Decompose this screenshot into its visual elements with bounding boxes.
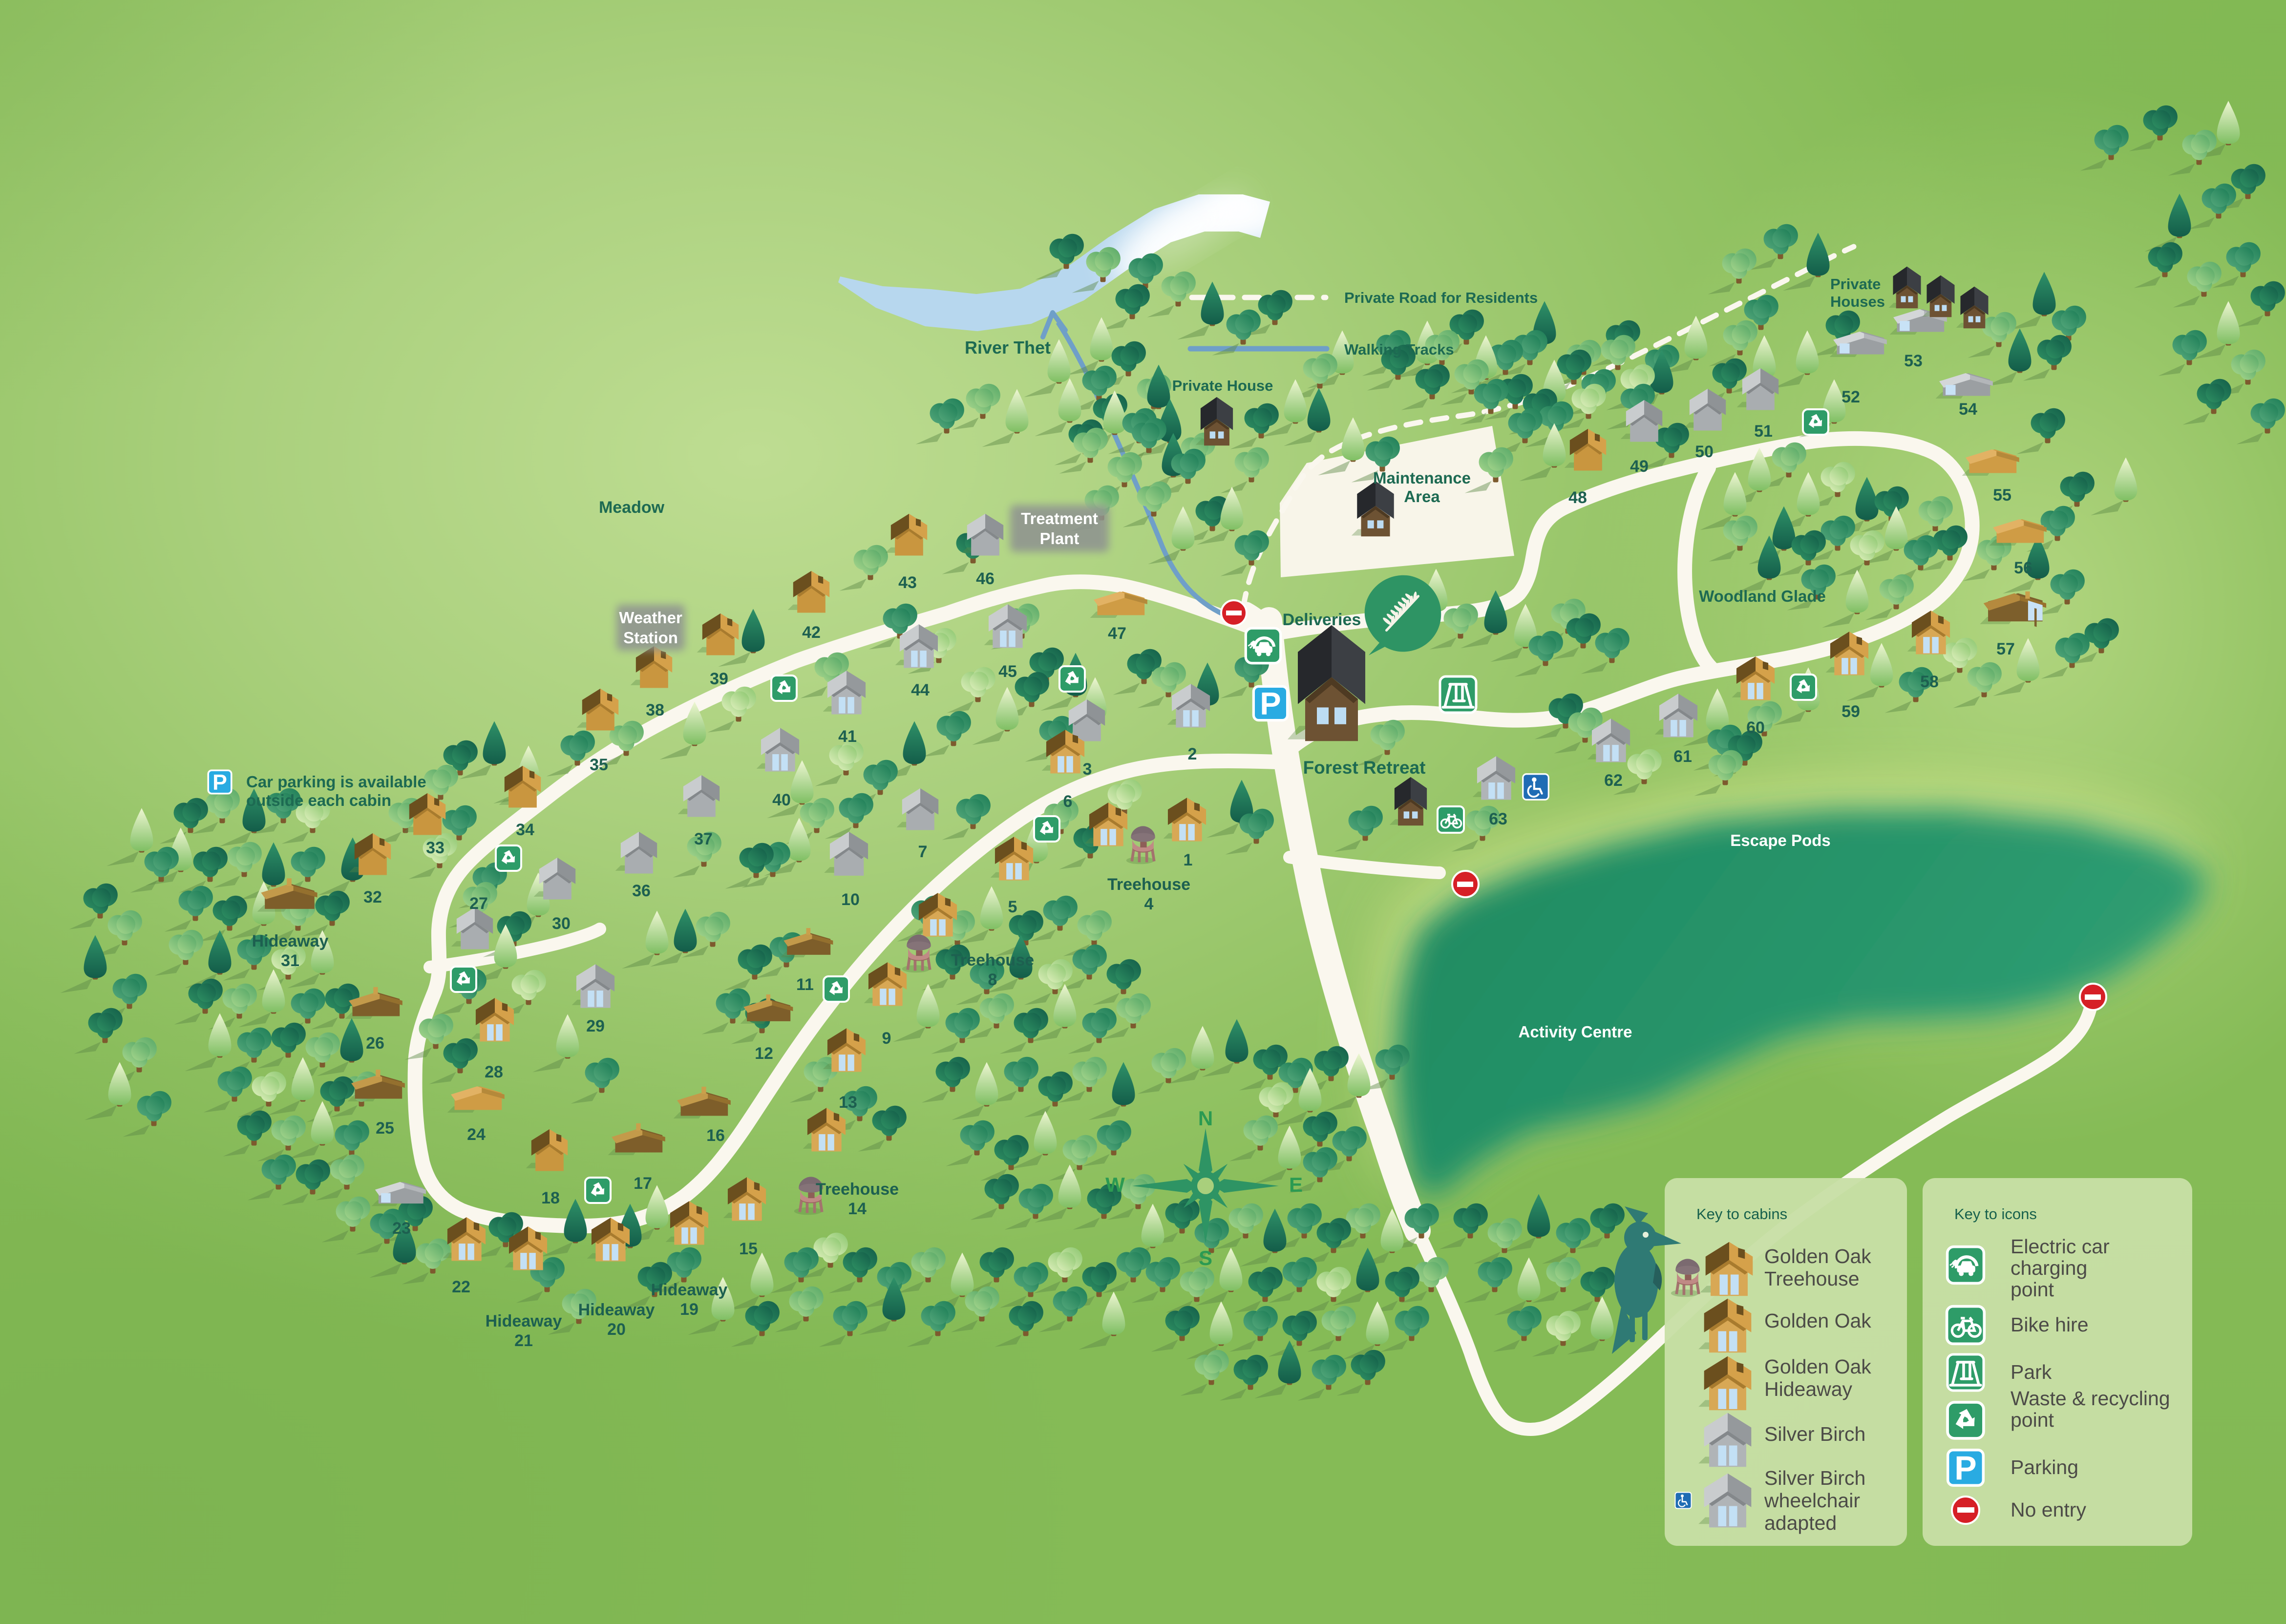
svg-text:Golden Oak: Golden Oak bbox=[1764, 1355, 1871, 1378]
svg-text:Park: Park bbox=[2011, 1361, 2052, 1383]
svg-text:charging: charging bbox=[2011, 1257, 2087, 1279]
svg-text:Houses: Houses bbox=[1830, 293, 1885, 310]
svg-text:Waste & recycling: Waste & recycling bbox=[2011, 1387, 2170, 1410]
svg-text:P: P bbox=[1260, 686, 1281, 721]
svg-text:Hideaway: Hideaway bbox=[1764, 1378, 1853, 1400]
svg-text:21: 21 bbox=[514, 1331, 533, 1350]
svg-text:adapted: adapted bbox=[1764, 1512, 1837, 1534]
svg-text:River Thet: River Thet bbox=[965, 337, 1051, 358]
svg-text:12: 12 bbox=[755, 1044, 773, 1063]
svg-text:34: 34 bbox=[516, 821, 534, 839]
svg-text:Private: Private bbox=[1830, 275, 1881, 293]
svg-text:40: 40 bbox=[772, 791, 791, 809]
svg-text:Private House: Private House bbox=[1172, 377, 1273, 394]
svg-text:35: 35 bbox=[590, 756, 608, 774]
svg-text:26: 26 bbox=[366, 1034, 384, 1053]
svg-text:Activity Centre: Activity Centre bbox=[1519, 1023, 1632, 1041]
svg-text:W: W bbox=[1105, 1173, 1125, 1196]
svg-text:Weather: Weather bbox=[619, 609, 682, 627]
svg-text:8: 8 bbox=[988, 970, 997, 989]
svg-text:Hideaway: Hideaway bbox=[578, 1301, 655, 1319]
svg-text:4: 4 bbox=[1144, 895, 1154, 913]
svg-text:11: 11 bbox=[796, 975, 814, 994]
svg-text:53: 53 bbox=[1904, 352, 1923, 370]
svg-text:52: 52 bbox=[1841, 388, 1860, 406]
svg-text:Treehouse: Treehouse bbox=[951, 951, 1034, 970]
svg-text:38: 38 bbox=[646, 701, 664, 719]
svg-text:N: N bbox=[1198, 1107, 1213, 1130]
svg-text:E: E bbox=[1289, 1173, 1303, 1196]
svg-text:14: 14 bbox=[848, 1200, 867, 1218]
svg-text:49: 49 bbox=[1630, 457, 1649, 476]
svg-text:18: 18 bbox=[541, 1189, 560, 1207]
svg-text:63: 63 bbox=[1489, 810, 1507, 828]
svg-text:41: 41 bbox=[838, 727, 857, 746]
svg-text:Golden Oak: Golden Oak bbox=[1764, 1309, 1871, 1332]
svg-text:54: 54 bbox=[1959, 400, 1977, 419]
svg-text:16: 16 bbox=[706, 1126, 725, 1145]
svg-text:27: 27 bbox=[469, 894, 488, 913]
svg-text:Deliveries: Deliveries bbox=[1283, 611, 1361, 629]
svg-text:7: 7 bbox=[918, 843, 928, 861]
svg-text:10: 10 bbox=[841, 890, 860, 909]
svg-text:Parking: Parking bbox=[2011, 1456, 2078, 1478]
svg-text:Hideaway: Hideaway bbox=[486, 1312, 562, 1330]
svg-text:Woodland Glade: Woodland Glade bbox=[1699, 587, 1826, 605]
svg-text:No entry: No entry bbox=[2011, 1498, 2086, 1521]
svg-text:25: 25 bbox=[376, 1119, 394, 1138]
svg-text:29: 29 bbox=[586, 1017, 605, 1035]
svg-text:62: 62 bbox=[1604, 771, 1623, 790]
svg-text:19: 19 bbox=[680, 1300, 698, 1319]
svg-text:1: 1 bbox=[1184, 851, 1193, 869]
svg-text:Golden Oak: Golden Oak bbox=[1764, 1245, 1871, 1267]
svg-text:Key to icons: Key to icons bbox=[1954, 1205, 2037, 1223]
svg-text:47: 47 bbox=[1108, 624, 1126, 643]
svg-text:36: 36 bbox=[632, 882, 651, 900]
svg-text:Plant: Plant bbox=[1040, 529, 1079, 548]
svg-text:50: 50 bbox=[1695, 443, 1714, 461]
svg-text:23: 23 bbox=[392, 1219, 411, 1238]
svg-text:Treatment: Treatment bbox=[1021, 509, 1098, 527]
svg-text:point: point bbox=[2011, 1278, 2054, 1301]
svg-text:32: 32 bbox=[363, 888, 382, 907]
svg-text:59: 59 bbox=[1841, 702, 1860, 721]
svg-text:57: 57 bbox=[1996, 640, 2015, 658]
svg-text:S: S bbox=[1199, 1246, 1212, 1269]
svg-text:Treehouse: Treehouse bbox=[1764, 1267, 1860, 1290]
svg-text:Area: Area bbox=[1404, 487, 1440, 506]
svg-text:Hideaway: Hideaway bbox=[252, 932, 329, 950]
svg-text:56: 56 bbox=[2014, 559, 2032, 577]
svg-text:3: 3 bbox=[1083, 760, 1092, 779]
svg-text:P: P bbox=[1954, 1450, 1976, 1487]
svg-text:30: 30 bbox=[552, 914, 571, 933]
svg-text:15: 15 bbox=[739, 1240, 758, 1258]
svg-text:outside each cabin: outside each cabin bbox=[246, 791, 391, 809]
svg-text:60: 60 bbox=[1746, 718, 1765, 737]
svg-text:46: 46 bbox=[976, 569, 995, 588]
svg-text:61: 61 bbox=[1673, 747, 1692, 766]
svg-text:13: 13 bbox=[839, 1093, 857, 1112]
svg-text:Maintenance: Maintenance bbox=[1373, 469, 1471, 487]
svg-text:point: point bbox=[2011, 1409, 2054, 1431]
svg-text:58: 58 bbox=[1920, 673, 1939, 691]
svg-text:51: 51 bbox=[1754, 422, 1773, 441]
svg-text:44: 44 bbox=[911, 681, 930, 699]
svg-text:31: 31 bbox=[281, 951, 299, 970]
svg-text:2: 2 bbox=[1188, 745, 1197, 763]
svg-text:55: 55 bbox=[1993, 486, 2011, 505]
svg-text:5: 5 bbox=[1008, 898, 1017, 916]
svg-text:Escape Pods: Escape Pods bbox=[1730, 831, 1830, 849]
svg-text:24: 24 bbox=[467, 1125, 486, 1144]
svg-text:wheelchair: wheelchair bbox=[1764, 1489, 1860, 1512]
svg-text:Station: Station bbox=[623, 629, 678, 647]
svg-text:Key to cabins: Key to cabins bbox=[1696, 1205, 1787, 1223]
svg-text:39: 39 bbox=[710, 670, 728, 688]
svg-text:33: 33 bbox=[426, 839, 444, 857]
svg-text:Walking Tracks: Walking Tracks bbox=[1344, 341, 1454, 358]
svg-text:28: 28 bbox=[485, 1063, 503, 1081]
svg-text:Meadow: Meadow bbox=[599, 498, 665, 517]
svg-text:43: 43 bbox=[898, 573, 917, 592]
svg-text:Car parking is available: Car parking is available bbox=[246, 773, 426, 791]
svg-text:Private Road for Residents: Private Road for Residents bbox=[1344, 289, 1538, 306]
svg-text:20: 20 bbox=[607, 1320, 626, 1339]
svg-text:45: 45 bbox=[998, 662, 1017, 681]
svg-text:17: 17 bbox=[634, 1174, 652, 1193]
svg-text:37: 37 bbox=[694, 830, 713, 848]
svg-text:42: 42 bbox=[802, 623, 821, 642]
svg-text:6: 6 bbox=[1063, 792, 1073, 811]
svg-text:P: P bbox=[212, 771, 227, 795]
svg-text:Treehouse: Treehouse bbox=[816, 1180, 899, 1199]
svg-text:Treehouse: Treehouse bbox=[1107, 875, 1190, 894]
svg-text:Silver Birch: Silver Birch bbox=[1764, 1423, 1865, 1445]
svg-text:Electric car: Electric car bbox=[2011, 1235, 2110, 1258]
svg-text:Bike hire: Bike hire bbox=[2011, 1313, 2089, 1336]
svg-text:22: 22 bbox=[452, 1278, 470, 1296]
svg-text:Silver Birch: Silver Birch bbox=[1764, 1467, 1865, 1489]
svg-text:48: 48 bbox=[1568, 488, 1587, 507]
svg-text:9: 9 bbox=[882, 1029, 891, 1048]
svg-text:Forest Retreat: Forest Retreat bbox=[1303, 758, 1426, 778]
svg-text:Hideaway: Hideaway bbox=[651, 1281, 728, 1299]
